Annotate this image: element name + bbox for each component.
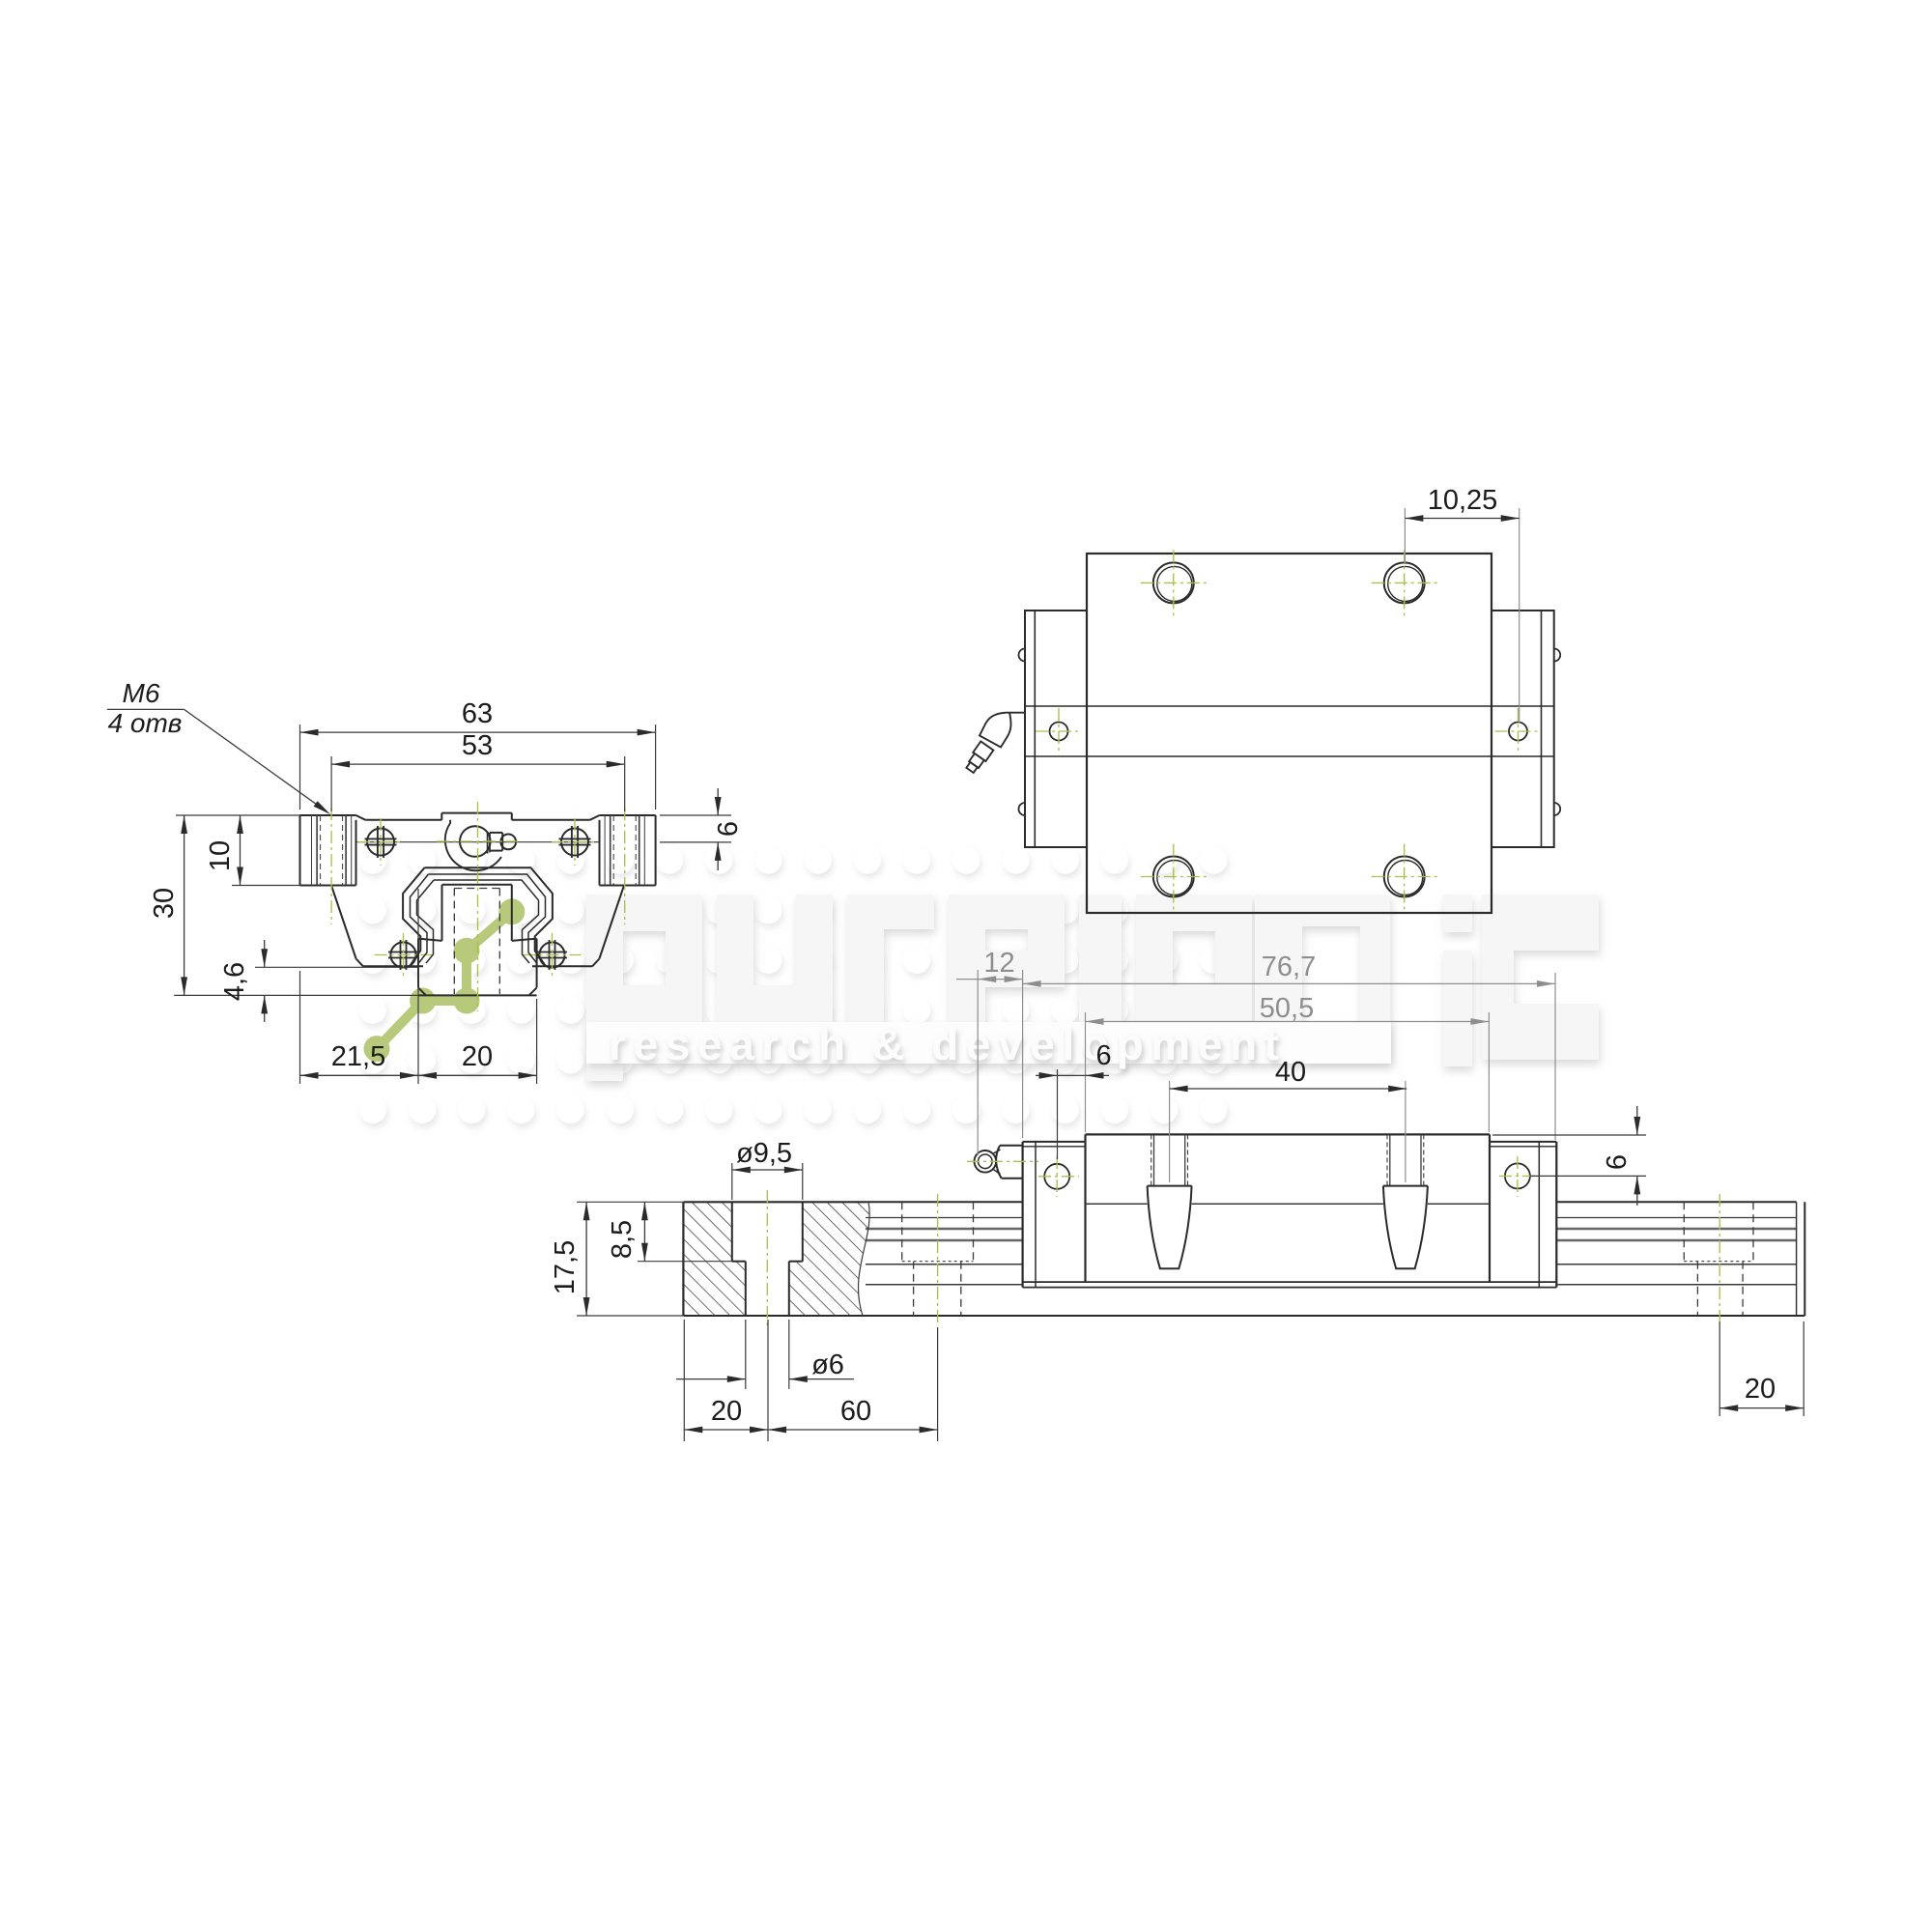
svg-text:6: 6 (713, 821, 744, 837)
svg-text:50,5: 50,5 (1260, 993, 1314, 1024)
svg-text:76,7: 76,7 (1262, 952, 1316, 982)
svg-text:60: 60 (840, 1396, 871, 1427)
svg-text:20: 20 (1745, 1374, 1776, 1405)
svg-text:research & development: research & development (609, 1019, 1279, 1069)
svg-text:8,5: 8,5 (607, 1220, 638, 1259)
svg-text:20: 20 (711, 1396, 742, 1427)
svg-text:ø9,5: ø9,5 (736, 1138, 792, 1169)
svg-text:21,5: 21,5 (331, 1041, 385, 1072)
svg-text:10,25: 10,25 (1428, 485, 1498, 516)
svg-text:40: 40 (1275, 1057, 1306, 1088)
svg-text:53: 53 (462, 730, 493, 761)
svg-text:17,5: 17,5 (550, 1240, 581, 1294)
svg-text:4 отв: 4 отв (108, 708, 183, 738)
svg-text:63: 63 (462, 698, 493, 729)
svg-text:6: 6 (1096, 1040, 1112, 1071)
svg-text:30: 30 (149, 888, 180, 919)
svg-text:4,6: 4,6 (219, 962, 250, 1001)
svg-text:20: 20 (462, 1041, 493, 1072)
svg-text:12: 12 (983, 948, 1014, 979)
svg-text:М6: М6 (123, 678, 160, 708)
svg-text:ø6: ø6 (811, 1350, 844, 1380)
svg-text:6: 6 (1602, 1154, 1633, 1170)
svg-text:10: 10 (205, 840, 236, 871)
